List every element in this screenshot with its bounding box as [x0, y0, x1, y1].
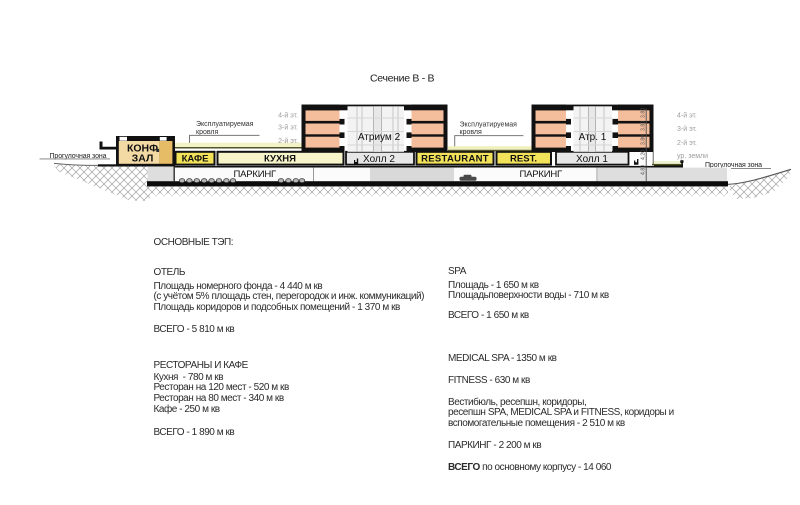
svg-text:ПАРКИНГ: ПАРКИНГ [520, 169, 563, 180]
svg-text:ур. земли: ур. земли [677, 153, 708, 160]
svg-text:4.20: 4.20 [641, 150, 647, 160]
svg-text:3-й эт.: 3-й эт. [677, 125, 697, 133]
svg-text:Сечение В - В: Сечение В - В [370, 73, 435, 85]
svg-text:4-й эт.: 4-й эт. [278, 112, 298, 120]
svg-text:3.80: 3.80 [641, 135, 647, 145]
svg-text:3-й эт.: 3-й эт. [278, 124, 298, 132]
svg-text:Холл 2: Холл 2 [363, 154, 395, 165]
svg-text:RESTAURANT: RESTAURANT [421, 154, 489, 165]
svg-text:4-й эт.: 4-й эт. [677, 111, 697, 119]
svg-text:3.80: 3.80 [641, 108, 647, 118]
svg-text:КУХНЯ: КУХНЯ [264, 154, 296, 165]
svg-text:2-й эт.: 2-й эт. [278, 137, 298, 145]
svg-text:Атриум 2: Атриум 2 [358, 132, 401, 143]
svg-text:Эксплуатируемая: Эксплуатируемая [196, 121, 254, 128]
svg-text:ПАРКИНГ: ПАРКИНГ [234, 169, 277, 180]
svg-text:Атр. 1: Атр. 1 [579, 132, 607, 143]
svg-text:4.80: 4.80 [641, 165, 647, 175]
svg-text:Холл 1: Холл 1 [576, 154, 608, 165]
svg-text:КАФЕ: КАФЕ [182, 154, 209, 165]
svg-text:2-й эт.: 2-й эт. [677, 139, 697, 147]
svg-text:3.80: 3.80 [641, 121, 647, 131]
svg-text:REST.: REST. [510, 154, 537, 165]
svg-text:Эксплуатируемая: Эксплуатируемая [460, 122, 518, 129]
svg-text:ЗАЛ: ЗАЛ [132, 153, 154, 165]
